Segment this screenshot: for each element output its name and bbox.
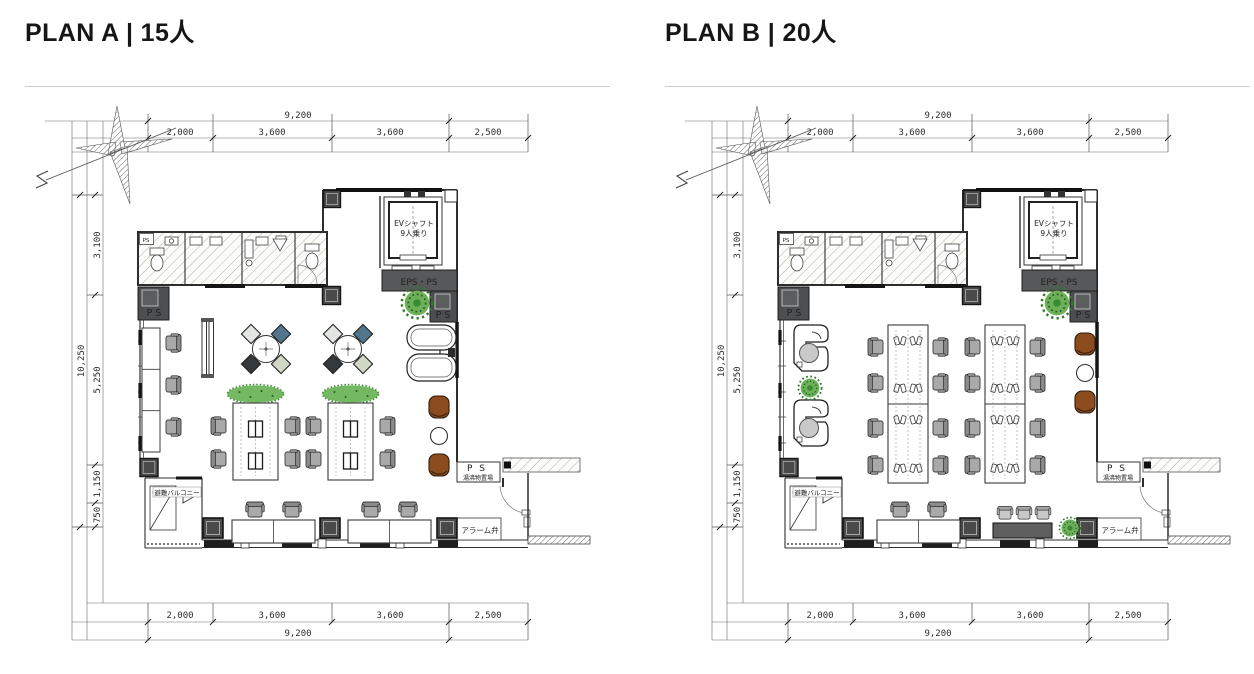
entry-storage-label: 湯沸物置場 — [1103, 474, 1133, 482]
dim-bottom-seg: 2,000 — [166, 611, 193, 621]
desk-bank — [877, 502, 960, 543]
dim-top-seg: 2,000 — [806, 128, 833, 138]
dim-bottom-seg: 2,000 — [806, 611, 833, 621]
plan-a-drawing: 9,200 2,000 3,600 3,600 2,500 10,250 3,1… — [25, 98, 610, 664]
dim-bottom-seg: 2,500 — [1114, 611, 1141, 621]
lounge-chair — [429, 396, 449, 418]
focus-pod — [794, 325, 828, 371]
dim-left-seg: 3,100 — [733, 231, 743, 258]
title-divider — [665, 86, 1250, 87]
plan-b-furniture — [794, 288, 1095, 543]
dim-left-seg: 1,150 — [93, 470, 103, 497]
dim-top-seg: 3,600 — [258, 128, 285, 138]
focus-pod — [794, 400, 828, 446]
office-chair — [1035, 506, 1051, 519]
building-shell — [36, 106, 590, 643]
office-chair — [1016, 506, 1032, 519]
entry-storage-label: 湯沸物置場 — [463, 474, 493, 482]
dim-bottom-seg: 3,600 — [898, 611, 925, 621]
dim-top-total: 9,200 — [284, 111, 311, 121]
plan-b-title: PLAN B | 20人 — [665, 13, 837, 49]
work-table — [211, 385, 300, 481]
side-table — [431, 428, 448, 445]
plant — [1042, 288, 1072, 318]
ps-small-label: PS — [783, 238, 790, 244]
dim-bottom-seg: 2,500 — [474, 611, 501, 621]
ps-right-label: P S — [1076, 310, 1091, 321]
ps-left-label: P S — [147, 308, 162, 319]
alarm-valve-label: アラーム弁 — [1101, 525, 1139, 535]
ev-shaft-label: EVシャフト — [394, 219, 434, 228]
title-divider — [25, 86, 610, 87]
lounge-chair — [1075, 333, 1095, 355]
dim-left-seg: 5,250 — [733, 366, 743, 393]
desk-bank — [965, 325, 1045, 483]
work-table — [306, 385, 395, 481]
office-chair — [166, 418, 181, 437]
ps-left-label: P S — [787, 308, 802, 319]
plant — [402, 288, 432, 318]
dim-left-seg: 3,100 — [93, 231, 103, 258]
ps-small-label: PS — [143, 238, 150, 244]
dim-left-total: 10,250 — [717, 345, 727, 378]
dim-left-seg: 750 — [93, 507, 103, 523]
building-shell — [676, 106, 1230, 643]
eps-ps-label: EPS・PS — [1041, 278, 1078, 288]
plan-a-title: PLAN A | 15人 — [25, 13, 195, 49]
dim-bottom-total: 9,200 — [284, 629, 311, 639]
dim-bottom-seg: 3,600 — [376, 611, 403, 621]
dim-top-total: 9,200 — [924, 111, 951, 121]
evac-balcony-label: 避難バルコニー — [154, 488, 199, 497]
plan-b-drawing: 9,200 2,000 3,600 3,600 2,500 10,250 3,1… — [665, 98, 1250, 664]
evac-balcony-label: 避難バルコニー — [794, 488, 839, 497]
plan-b: PLAN B | 20人 9,200 2,000 3,600 3,600 2,5… — [665, 0, 1250, 674]
dim-left-seg: 5,250 — [93, 366, 103, 393]
dim-bottom-total: 9,200 — [924, 629, 951, 639]
ps-right-label: P S — [436, 310, 451, 321]
dim-left-seg: 1,150 — [733, 470, 743, 497]
dim-left-total: 10,250 — [77, 345, 87, 378]
eps-ps-label: EPS・PS — [401, 278, 438, 288]
ps-entry-label: P S — [1107, 464, 1127, 474]
office-chair — [997, 506, 1013, 519]
ps-entry-label: P S — [467, 464, 487, 474]
dim-top-seg: 2,000 — [166, 128, 193, 138]
plant — [1060, 518, 1081, 539]
dim-left-seg: 750 — [733, 507, 743, 523]
plan-a: PLAN A | 15人 — [25, 0, 610, 674]
whiteboard — [201, 318, 214, 378]
desk-bank — [232, 502, 315, 543]
dim-top-seg: 2,500 — [474, 128, 501, 138]
dim-bottom-seg: 3,600 — [1016, 611, 1043, 621]
dim-top-seg: 3,600 — [1016, 128, 1043, 138]
dim-bottom-seg: 3,600 — [258, 611, 285, 621]
sofa-booth — [407, 325, 456, 381]
dim-top-seg: 3,600 — [898, 128, 925, 138]
wall-desks — [142, 328, 181, 452]
dim-top-seg: 3,600 — [376, 128, 403, 138]
meeting-table-4 — [241, 324, 290, 373]
alarm-valve-label: アラーム弁 — [461, 525, 499, 535]
lounge-chair — [429, 454, 449, 476]
plant — [798, 376, 821, 399]
ev-capacity-label: 9人乗り — [1040, 228, 1067, 238]
meeting-table-4 — [323, 324, 372, 373]
counter-table — [993, 506, 1052, 538]
office-chair — [166, 376, 181, 395]
ev-shaft-label: EVシャフト — [1034, 219, 1074, 228]
desk-bank — [868, 325, 948, 483]
side-table — [1077, 365, 1094, 382]
plan-a-furniture — [142, 288, 456, 543]
ev-capacity-label: 9人乗り — [400, 228, 427, 238]
desk-bank — [348, 502, 431, 543]
office-chair — [166, 334, 181, 353]
dim-top-seg: 2,500 — [1114, 128, 1141, 138]
lounge-chair — [1075, 391, 1095, 413]
